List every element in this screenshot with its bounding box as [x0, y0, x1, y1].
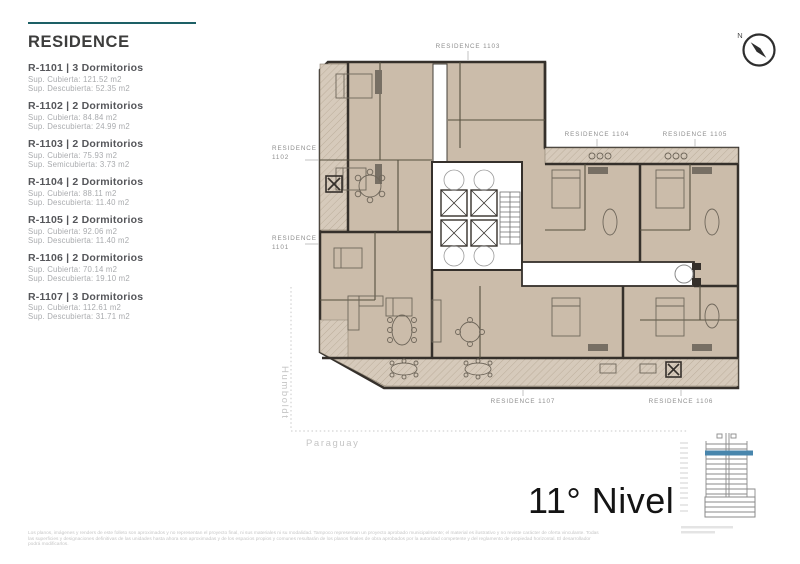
unit-name: R-1105 | 2 Dormitorios — [28, 214, 218, 227]
disclaimer-line-1: Los planos, imágenes y renders de este f… — [28, 531, 646, 537]
unit-name: R-1102 | 2 Dormitorios — [28, 100, 218, 113]
compass-icon: N — [737, 31, 774, 66]
floor-plan — [320, 62, 738, 388]
unit-area-covered: Sup. Cubierta: 75.93 m2 — [28, 151, 218, 160]
corridor — [522, 262, 701, 286]
corridor-column — [675, 265, 693, 283]
unit-area-covered: Sup. Cubierta: 121.52 m2 — [28, 75, 218, 84]
unit-area-semicovered: Sup. Semicubierta: 3.73 m2 — [28, 160, 218, 169]
unit-area-covered: Sup. Cubierta: 84.84 m2 — [28, 113, 218, 122]
label-residence-1101: RESIDENCE 1101 — [272, 235, 319, 251]
unit-name: R-1106 | 2 Dormitorios — [28, 252, 218, 265]
unit-list-sidebar: RESIDENCE R-1101 | 3 Dormitorios Sup. Cu… — [28, 22, 218, 329]
light-well — [433, 64, 447, 162]
svg-text:1101: 1101 — [272, 244, 289, 251]
unit-listing-r1102: R-1102 | 2 Dormitorios Sup. Cubierta: 84… — [28, 100, 218, 131]
label-residence-1102: RESIDENCE 1102 — [272, 145, 319, 161]
unit-listing-r1105: R-1105 | 2 Dormitorios Sup. Cubierta: 92… — [28, 214, 218, 245]
unit-area-covered: Sup. Cubierta: 112.61 m2 — [28, 303, 218, 312]
elevation-caption-placeholder — [681, 526, 733, 534]
unit-name: R-1103 | 2 Dormitorios — [28, 138, 218, 151]
unit-area-covered: Sup. Cubierta: 88.11 m2 — [28, 189, 218, 198]
elevation-floor-index-marks — [680, 443, 688, 511]
unit-name: R-1107 | 3 Dormitorios — [28, 291, 218, 304]
elevation-current-level-highlight — [705, 451, 753, 456]
stairwell — [500, 192, 520, 244]
unit-listing-r1106: R-1106 | 2 Dormitorios Sup. Cubierta: 70… — [28, 252, 218, 283]
street-label-humboldt: Humboldt — [279, 366, 290, 419]
unit-listing-r1107: R-1107 | 3 Dormitorios Sup. Cubierta: 11… — [28, 291, 218, 322]
plan-outline — [320, 62, 738, 388]
label-residence-1106: RESIDENCE 1106 — [649, 398, 714, 405]
elevation-podium — [705, 497, 755, 517]
unit-name: R-1104 | 2 Dormitorios — [28, 176, 218, 189]
brochure-page: RESIDENCE 1103 RESIDENCE 1104 RESIDENCE … — [0, 0, 800, 564]
page-title: RESIDENCE — [28, 33, 218, 52]
disclaimer-line-3: podrá modificarlos. — [28, 542, 646, 548]
unit-area-covered: Sup. Cubierta: 70.14 m2 — [28, 265, 218, 274]
building-elevation-diagram — [680, 433, 755, 534]
disclaimer-line-2: las superficies y designaciones definiti… — [28, 537, 646, 543]
level-title: 11° Nivel — [528, 480, 674, 522]
elevator-core — [432, 162, 522, 270]
unit-listing-r1104: R-1104 | 2 Dormitorios Sup. Cubierta: 88… — [28, 176, 218, 207]
unit-area-uncovered: Sup. Descubierta: 52.35 m2 — [28, 84, 218, 93]
label-residence-1107: RESIDENCE 1107 — [491, 398, 556, 405]
label-residence-1104: RESIDENCE 1104 — [565, 131, 630, 138]
label-residence-1105: RESIDENCE 1105 — [663, 131, 728, 138]
label-residence-1103: RESIDENCE 1103 — [436, 43, 501, 50]
svg-text:RESIDENCE: RESIDENCE — [272, 145, 317, 152]
unit-area-uncovered: Sup. Descubierta: 31.71 m2 — [28, 312, 218, 321]
street-label-paraguay: Paraguay — [306, 438, 359, 449]
compass-north-label: N — [737, 31, 742, 40]
unit-listing-r1101: R-1101 | 3 Dormitorios Sup. Cubierta: 12… — [28, 62, 218, 93]
svg-text:RESIDENCE: RESIDENCE — [272, 235, 317, 242]
elevation-tower — [706, 433, 755, 500]
unit-area-uncovered: Sup. Descubierta: 19.10 m2 — [28, 274, 218, 283]
unit-name: R-1101 | 3 Dormitorios — [28, 62, 218, 75]
accent-rule — [28, 22, 196, 24]
unit-area-uncovered: Sup. Descubierta: 11.40 m2 — [28, 198, 218, 207]
unit-area-uncovered: Sup. Descubierta: 11.40 m2 — [28, 236, 218, 245]
unit-area-covered: Sup. Cubierta: 92.06 m2 — [28, 227, 218, 236]
unit-area-uncovered: Sup. Descubierta: 24.99 m2 — [28, 122, 218, 131]
svg-text:1102: 1102 — [272, 154, 289, 161]
unit-listing-r1103: R-1103 | 2 Dormitorios Sup. Cubierta: 75… — [28, 138, 218, 169]
disclaimer: Los planos, imágenes y renders de este f… — [28, 531, 646, 548]
